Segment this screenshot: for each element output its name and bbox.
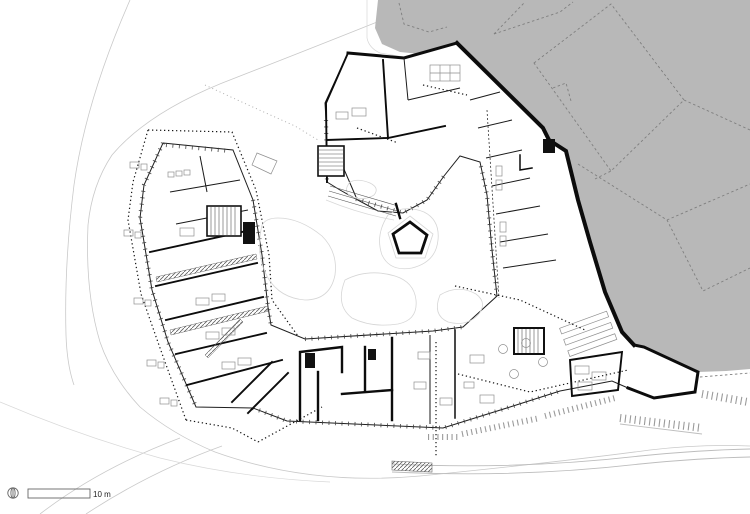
- ramp-hatched: [392, 461, 432, 472]
- stair-east-wing: [514, 328, 544, 354]
- floor-plan-drawing: 10 m: [0, 0, 750, 514]
- stair-top-wing: [318, 146, 344, 176]
- scale-label: 10 m: [93, 490, 111, 499]
- floor-plan-canvas: 10 m: [0, 0, 750, 514]
- stair-left-wing: [207, 206, 241, 236]
